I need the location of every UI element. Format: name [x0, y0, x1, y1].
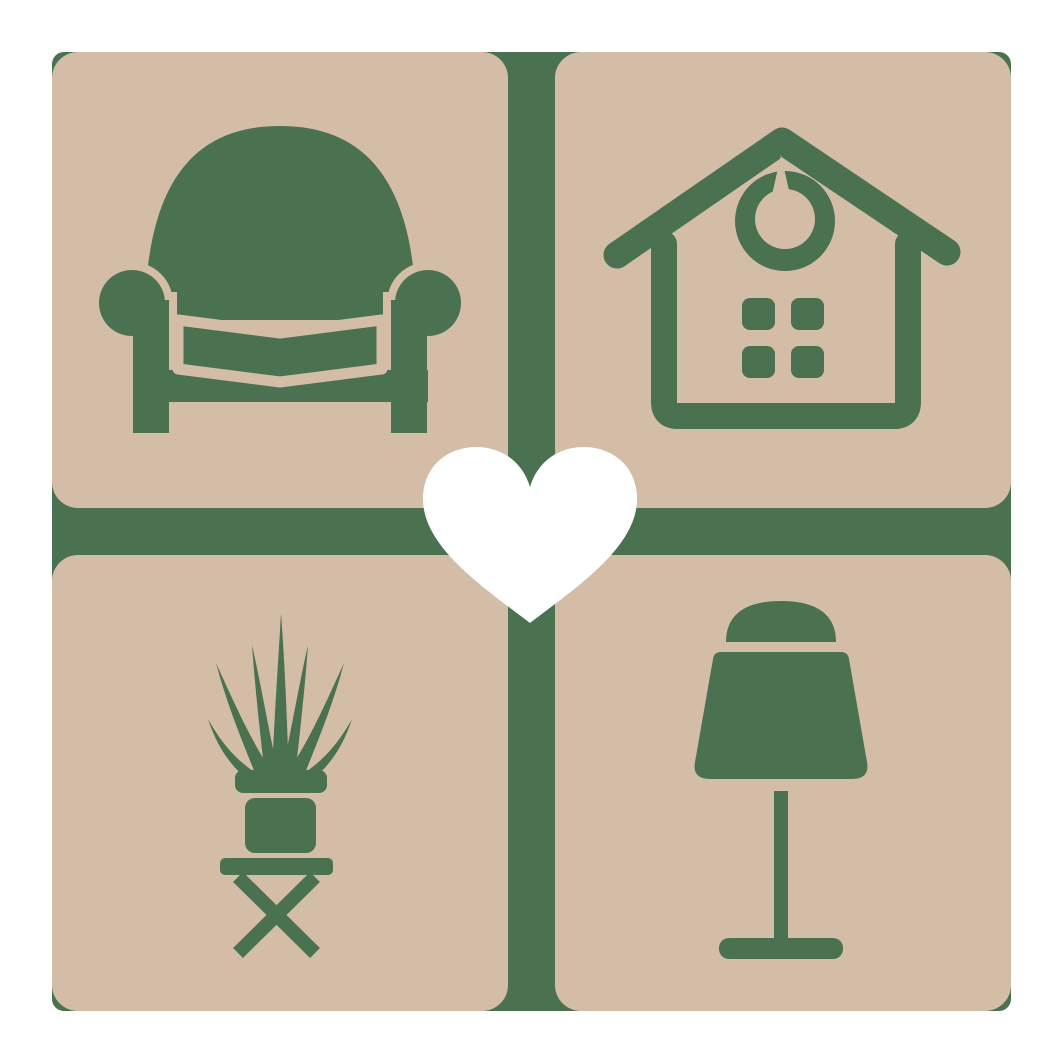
lamp-stem [774, 791, 788, 943]
tile-potted-plant [52, 555, 508, 1011]
plant-leaves [208, 613, 352, 783]
house-window [742, 298, 824, 378]
chair-seat-cushion [178, 320, 382, 382]
tile-house [555, 52, 1011, 508]
heart-shape [423, 447, 637, 623]
pot-body [245, 798, 316, 853]
potted-plant-icon [52, 555, 508, 1011]
heart-icon [423, 447, 637, 623]
center-heart [423, 447, 637, 623]
lamp-cap [726, 601, 836, 642]
logo-canvas [0, 0, 1063, 1063]
chair-back [145, 126, 416, 320]
lamp-base [719, 938, 843, 959]
stool-top [220, 858, 333, 875]
pot-rim [235, 770, 327, 793]
tile-armchair [52, 52, 508, 508]
lamp-shade [695, 652, 868, 779]
stool-legs [238, 877, 315, 953]
wreath-hole [755, 189, 815, 249]
tile-table-lamp [555, 555, 1011, 1011]
house-icon [555, 52, 1011, 508]
table-lamp-icon [555, 555, 1011, 1011]
armchair-icon [52, 52, 508, 508]
